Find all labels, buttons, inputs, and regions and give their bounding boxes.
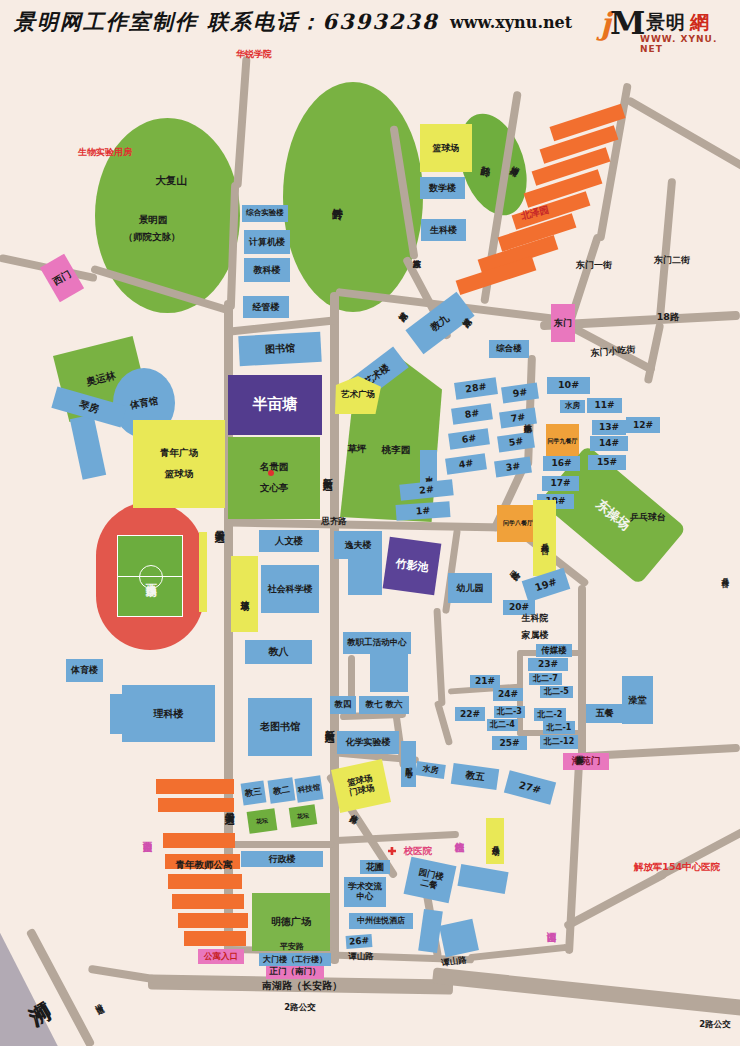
dorm-11-label: 11#: [594, 400, 614, 410]
label-shihe-label: 浉河: [16, 984, 38, 998]
canteen-wenxue-9: 问学九餐厅: [546, 424, 579, 459]
bldg-huaxue-label: 化学实验楼: [346, 737, 391, 747]
dorm-13-label: 13#: [599, 422, 619, 432]
bldg-jiaoke: 教科楼: [244, 258, 290, 282]
bldg-zonghelou-label: 综合楼: [496, 344, 522, 354]
gate-main-south-label: 正门（南门）: [270, 967, 321, 977]
dorm-17-label: 17#: [550, 478, 570, 488]
bldg-library: 图书馆: [238, 332, 321, 366]
bldg-xingzheng: 行政楼: [241, 851, 323, 867]
wenxinting-dot: [268, 470, 274, 476]
piano-bldg-stem: [70, 414, 106, 480]
dorm-24: 24#: [493, 688, 523, 701]
bldg-wucan: 五餐: [586, 704, 623, 723]
dorm-19: 19#: [522, 568, 571, 603]
dorm-1-label: 1#: [415, 505, 430, 517]
bldg-peidian: 配电中心: [401, 741, 416, 787]
stadium-west: 西操场: [96, 502, 204, 650]
court-basketball-mid: 篮球场: [231, 556, 258, 632]
bldg-xueshu: 学术交流 中心: [344, 877, 386, 907]
plaza-mingde-label: 明德广场: [271, 916, 311, 928]
apt-bar-8: [184, 931, 246, 946]
dorm-8-label: 8#: [464, 408, 480, 421]
piano-bldg-bar-label: 琴房: [78, 399, 100, 416]
gate-haiyuan: 海苑门: [563, 753, 609, 770]
label-jingming-upper-label: 景明大道: [214, 522, 226, 526]
bldg-tiyu-label: 体育楼: [71, 665, 98, 675]
label-taolilu-label: 桃李路: [523, 417, 532, 420]
apt-bar-5: [168, 874, 242, 889]
dorm-15-label: 15#: [597, 457, 617, 467]
dorm-13: 13#: [592, 420, 626, 435]
label-xinmin-upper-label: 新民大道: [322, 470, 334, 474]
bldg-jiaozhigong-b: [370, 654, 408, 692]
label-siqilu-h: 思齐路: [314, 516, 354, 527]
bldg-jiaoba-label: 教八: [269, 646, 289, 658]
dorm-bei2-4: 北二-4: [487, 719, 518, 731]
label-tanshanlu-1-label: 谭山路: [348, 952, 374, 962]
dorm-24-label: 24#: [498, 689, 518, 699]
label-18lu: 18路: [652, 311, 684, 323]
label-dongmen-yijie-label: 东门一街: [576, 260, 612, 270]
bldg-zaotang: 澡堂: [622, 676, 653, 724]
bldg-unlabeled-a: [457, 864, 508, 894]
label-jiashulou: 家属楼: [512, 629, 558, 641]
dorm-22-label: 22#: [460, 709, 480, 719]
dorm-6: 6#: [448, 428, 490, 449]
label-taolilu: 桃李路: [521, 396, 534, 440]
label-siqilu-diag-label: 思齐路: [502, 565, 510, 574]
campus-map: 奥运林西操场体育馆琴房青年广场 篮球场半亩塘名贵园 文心亭竹影池西门东门海苑门公…: [0, 0, 740, 1046]
road-youeryuan-2: [433, 608, 445, 706]
bldg-huaxue: 化学实验楼: [337, 731, 399, 754]
dorm-bei2-3: 北二-3: [494, 706, 525, 718]
dorm-1: 1#: [396, 501, 451, 521]
pond-banmutang: 半亩塘: [228, 375, 322, 435]
bldg-hotel-label: 中州佳悦酒店: [357, 916, 405, 925]
road-tanshanlu-4: [654, 827, 740, 882]
gate-west-label: 西门: [51, 269, 73, 288]
flowerbed-2-label: 花坛: [297, 812, 310, 820]
bldg-yifu-b: [348, 559, 382, 595]
road-xiaoyiyuan-h: [333, 831, 459, 845]
gym-ellipse-label: 体育馆: [129, 395, 159, 411]
road-dongmen-erjie-s: [644, 322, 665, 384]
dorm-27-label: 27#: [518, 779, 543, 796]
flowerbed-1: 花坛: [247, 808, 278, 834]
label-tanshanyuan-label: 谭山园: [546, 924, 557, 927]
dorm-bei2-2: 北二-2: [534, 708, 566, 721]
gate-west: 西门: [40, 254, 84, 303]
label-zhongxiuling-label: 钟秀岭: [332, 199, 344, 202]
flowerbed-2: 花坛: [289, 804, 318, 827]
dorm-16: 16#: [543, 456, 580, 471]
pingpong-strip-mid-label: 乒乓球台: [540, 536, 549, 540]
label-xiwangyuan-label: 西望园: [142, 834, 153, 837]
dorm-11: 11#: [587, 398, 622, 413]
label-2lu-1: 2路公交: [275, 1002, 325, 1013]
label-shengwu: 生物实验用房: [70, 146, 140, 158]
label-shengwu-label: 生物实验用房: [78, 147, 132, 157]
dorm-10-label: 10#: [558, 380, 579, 391]
dorm-19-label: 19#: [534, 576, 559, 594]
bldg-old-library-label: 老图书馆: [260, 721, 300, 733]
label-queling-label: 鹊岭: [481, 158, 492, 162]
bldg-youeryuan: 幼儿园: [448, 573, 492, 603]
dorm-23: 23#: [528, 658, 568, 671]
bldg-chuanmei-label: 传媒楼: [541, 646, 567, 656]
road-youeryuan-3: [434, 700, 453, 746]
bldg-shuifang-3-label: 水房: [422, 764, 439, 775]
bldg-jiaosi-label: 教四: [335, 700, 352, 710]
bldg-kejiguan-label: 科技馆: [297, 783, 320, 795]
bldg-tiyu: 体育楼: [66, 659, 103, 682]
label-shengkeyuan-label: 生科院: [522, 613, 549, 623]
dorm-28-label: 28#: [465, 382, 488, 396]
dorm-4: 4#: [445, 453, 487, 474]
bldg-shuifang-1-label: 水房: [424, 469, 433, 471]
label-pingpong-east-label: 乒乓球台: [630, 512, 666, 522]
bldg-jiaozhigong-a: 教职工活动中心: [343, 632, 411, 654]
label-siqilu-h-label: 思齐路: [321, 517, 347, 527]
bldg-huapu: 花圃: [360, 860, 390, 874]
label-shiyuanwenmai: （师院文脉）: [118, 231, 186, 243]
dorm-bei2-12-label: 北二-12: [544, 737, 574, 746]
label-dongmen-erjie-label: 东门二街: [654, 255, 690, 265]
pond-zhuyingchi-label: 竹影池: [395, 557, 429, 574]
bldg-youeryuan-label: 幼儿园: [457, 583, 484, 593]
label-jingmingyuan: 景明园: [130, 214, 176, 226]
dorm-14: 14#: [590, 436, 628, 451]
dorm-bei2-4-label: 北二-4: [490, 720, 515, 729]
bldg-jiaosan-label: 教三: [244, 787, 262, 799]
bldg-yifu-a: 逸夫楼: [334, 531, 382, 559]
label-jiefangjun-label: 解放军154中心医院: [634, 862, 720, 873]
dorm-bei2-1-label: 北二-1: [547, 723, 572, 732]
gate-apartment-entry: 公寓入口: [198, 949, 244, 964]
bldg-jiaoqi-jiaoliu-label: 教七 教六: [366, 700, 403, 710]
bldg-xingzheng-label: 行政楼: [269, 854, 296, 864]
plaza-yishu-label: 艺术广场: [341, 390, 375, 400]
bldg-jisuanji: 计算机楼: [244, 230, 290, 254]
bldg-zaotang-label: 澡堂: [629, 695, 647, 705]
label-jingmingyuan-label: 景明园: [139, 215, 168, 226]
road-east-branch: [625, 96, 740, 172]
gate-east-label: 东门: [554, 318, 572, 328]
dorm-25-label: 25#: [499, 738, 519, 748]
bldg-shuifang-2-label: 水房: [565, 402, 580, 411]
dorm-21-label: 21#: [475, 676, 495, 686]
campus-map-page: 景明网工作室制作 联系电话：6393238 www.xynu.net j M 景…: [0, 0, 740, 1046]
gate-apartment-entry-label: 公寓入口: [204, 952, 238, 962]
dorm-27: 27#: [504, 770, 556, 805]
label-dafushan-label: 大复山: [155, 174, 187, 186]
dorm-28: 28#: [454, 377, 498, 400]
dorm-12-label: 12#: [633, 420, 653, 430]
gate-main-south: 正门（南门）: [266, 965, 324, 979]
label-nanhulu: 南湖路（长安路）: [252, 979, 352, 992]
garden-minggui-label: 名贵园 文心亭: [260, 462, 289, 495]
label-huarui-label: 华锐学院: [236, 49, 272, 59]
label-xinmin-upper: 新民大道: [320, 432, 335, 512]
dorm-16-label: 16#: [551, 458, 571, 468]
label-2lu-2-label: 2路公交: [699, 1020, 730, 1030]
dorm-6-label: 6#: [461, 433, 477, 446]
gatehouse-bank: 大门楼（工行楼）: [259, 953, 331, 966]
label-yanhe-dadao-label: 沿河大道: [90, 997, 99, 1005]
dorm-10: 10#: [547, 377, 590, 394]
label-caoping: 草坪: [344, 442, 370, 456]
canteen-wenxue-9-label: 问学九餐厅: [548, 438, 578, 445]
bldg-shuxue: 数学楼: [420, 177, 465, 199]
dorm-14-label: 14#: [599, 438, 619, 448]
stadium-stand: [199, 532, 207, 612]
bldg-hotel: 中州佳悦酒店: [349, 913, 413, 929]
bldg-yuanmenlou-label: 园门楼 二餐: [415, 868, 444, 892]
pingpong-strip-mid: 乒乓球台: [533, 500, 556, 576]
bldg-shehuikexue-label: 社会科学楼: [268, 584, 313, 594]
bldg-zonghelou: 综合楼: [489, 340, 529, 358]
court-basketball-mid-label: 篮球场: [240, 593, 250, 596]
bldg-jisuanji-label: 计算机楼: [249, 237, 285, 247]
dorm-22: 22#: [455, 707, 485, 721]
garden-minggui: 名贵园 文心亭: [228, 437, 320, 519]
road-yanhe-branch: [88, 965, 156, 984]
bldg-jiaoer-label: 教二: [272, 784, 290, 796]
dorm-bei2-5-label: 北二-5: [544, 687, 569, 696]
dorm-26: 26#: [346, 934, 373, 949]
road-xingzheng-h: [228, 841, 334, 848]
grove-aoyunlin-label: 奥运林: [85, 370, 117, 388]
bldg-unlabeled-c: [439, 919, 479, 957]
dorm-17: 17#: [542, 476, 579, 491]
bldg-jiaoer: 教二: [268, 777, 296, 803]
label-dongmen-erjie: 东门二街: [646, 254, 698, 266]
label-qingjiao-gongyu-label: 青年教师公寓: [176, 860, 233, 871]
apt-bar-7: [178, 913, 248, 928]
dorm-25: 25#: [492, 736, 527, 750]
court-basketball-top-label: 篮球场: [433, 143, 460, 153]
pond-zhuyingchi: 竹影池: [383, 537, 442, 596]
bldg-like-a-label: 理科楼: [154, 708, 184, 720]
flowerbed-1-label: 花坛: [256, 817, 269, 825]
dorm-8: 8#: [451, 403, 493, 424]
hospital-cross-icon: [388, 847, 396, 855]
label-siqilu-v-label: 思齐路: [575, 749, 584, 752]
road-tanshanlu-3: [563, 869, 668, 930]
bldg-kejiguan: 科技馆: [294, 775, 323, 802]
bldg-jiaosan: 教三: [241, 781, 267, 806]
stadium-west-label: 西操场: [144, 575, 157, 578]
label-jingming-upper: 景明大道: [212, 484, 227, 564]
road-nanhulu-2: [432, 967, 740, 1016]
label-jingming-lower: 景明大道: [222, 766, 237, 846]
label-xinmin-lower: 新民大道: [322, 682, 337, 766]
bldg-jiaowu-label: 教五: [465, 770, 485, 783]
canteen-wenxue-8-label: 问学八餐厅: [503, 520, 533, 527]
dorm-2-label: 2#: [419, 484, 435, 496]
label-tanshanlu-2-label: 谭山路: [441, 955, 468, 968]
bldg-chuanmei: 传媒楼: [536, 644, 572, 657]
dorm-bei2-3-label: 北二-3: [497, 707, 522, 716]
label-jiefangjun: 解放军154中心医院: [614, 861, 740, 873]
label-xiaoyiyuan: 校医院: [397, 845, 439, 857]
label-dongmen-yijie: 东门一街: [568, 259, 620, 271]
bldg-jiaoke-label: 教科楼: [254, 265, 281, 275]
bldg-yifu-a-label: 逸夫楼: [345, 540, 372, 550]
label-tanshanyuan: 谭山园: [544, 902, 558, 948]
label-jiashulou-label: 家属楼: [522, 630, 549, 640]
label-dafushan: 大复山: [148, 174, 194, 187]
dorm-bei2-7: 北二-7: [529, 673, 562, 685]
label-shidilu-label: 浉堤路: [514, 159, 524, 166]
label-caoping-label: 草坪: [348, 444, 367, 455]
dorm-bei2-7-label: 北二-7: [533, 674, 558, 683]
bldg-like-a: 理科楼: [122, 685, 215, 742]
bldg-shuifang-2: 水房: [560, 400, 585, 413]
road-dongmen-erjie: [656, 178, 676, 320]
dorm-23-label: 23#: [538, 659, 558, 669]
label-2lu-2: 2路公交: [690, 1019, 740, 1030]
bldg-huapu-label: 花圃: [366, 862, 384, 872]
dorm-4-label: 4#: [458, 458, 474, 471]
label-yiguilu-label: 依桂路: [354, 807, 363, 814]
label-pingpong-right-label: 乒乓球台: [720, 571, 729, 575]
road-jingming-top-1: [233, 56, 250, 188]
dorm-3: 3#: [494, 457, 532, 478]
bldg-shengke: 生科楼: [421, 219, 466, 241]
label-shengkeyuan: 生科院: [512, 612, 558, 624]
label-pingpong-right: 乒乓球台: [718, 548, 731, 598]
bldg-jingguan-label: 经管楼: [253, 302, 280, 312]
dorm-15: 15#: [588, 455, 626, 470]
bldg-renwen: 人文楼: [259, 530, 319, 552]
bldg-jiaowu: 教五: [451, 763, 499, 790]
label-zhongxiuling: 钟秀岭: [330, 168, 346, 232]
label-dongchenglu-2-label: 东城路: [454, 312, 462, 321]
label-jingming-lower-label: 景明大道: [224, 804, 236, 808]
court-basketball-top: 篮球场: [420, 124, 472, 172]
dorm-21: 21#: [470, 675, 500, 688]
bldg-jiaoqi-jiaoliu: 教七 教六: [359, 696, 409, 714]
label-18lu-label: 18路: [657, 312, 680, 323]
label-dongpolu: 东坡路: [410, 232, 423, 274]
bldg-library-label: 图书馆: [265, 342, 296, 355]
dorm-bei2-5: 北二-5: [540, 686, 573, 698]
label-nanhulu-label: 南湖路（长安路）: [262, 980, 342, 992]
label-pinganlu: 平安路: [274, 942, 310, 952]
label-yiguiyuan: 依桂园: [452, 812, 466, 858]
bldg-jiaoba: 教八: [245, 640, 312, 664]
label-qingjiao-gongyu: 青年教师公寓: [164, 859, 244, 871]
bldg-renwen-label: 人文楼: [275, 536, 304, 547]
bldg-yuanmenlou: 园门楼 二餐: [404, 857, 457, 904]
bldg-shengke-label: 生科楼: [430, 225, 457, 235]
label-yiguiyuan-label: 依桂园: [454, 834, 465, 837]
bldg-shuifang-3: 水房: [415, 761, 446, 779]
bldg-zonghe-shiyan-label: 综合实验楼: [246, 209, 284, 218]
label-xinmin-lower-label: 新民大道: [324, 722, 336, 726]
bldg-shehuikexue: 社会科学楼: [261, 565, 319, 613]
bldg-shuxue-label: 数学楼: [429, 183, 456, 193]
dorm-bei2-2-label: 北二-2: [538, 710, 563, 719]
label-dongpolu-label: 东坡路: [412, 252, 421, 255]
label-xiaoyiyuan-label: 校医院: [404, 846, 433, 857]
label-taoliyuan: 桃李园: [376, 443, 416, 457]
label-tanshanlu-1: 谭山路: [341, 951, 381, 962]
bldg-xueshu-label: 学术交流 中心: [348, 882, 382, 902]
label-taoliyuan-label: 桃李园: [382, 445, 411, 456]
label-pingpong-east: 乒乓球台: [622, 511, 674, 523]
bldg-wucan-label: 五餐: [596, 708, 614, 718]
apt-bar-6: [172, 894, 244, 909]
bldg-jingguan: 经管楼: [243, 296, 289, 318]
bldg-jiaozhigong-a-label: 教职工活动中心: [347, 638, 407, 648]
court-pingpong-yigui-label: 乒乓球场: [491, 839, 500, 843]
label-huarui: 华锐学院: [228, 48, 280, 60]
label-siqilu-diag: 思齐路: [486, 551, 527, 588]
road-tanshan-v: [565, 762, 583, 954]
label-siqilu-v: 思齐路: [573, 730, 585, 770]
label-2lu-1-label: 2路公交: [284, 1003, 315, 1013]
dorm-12: 12#: [626, 417, 660, 433]
bldg-peidian-label: 配电中心: [404, 762, 412, 766]
bldg-zonghe-shiyan: 综合实验楼: [242, 205, 288, 222]
label-dongchenglu-1-label: 东城路: [390, 306, 398, 315]
label-pinganlu-label: 平安路: [280, 942, 304, 951]
dorm-3-label: 3#: [505, 461, 521, 474]
youth-square-label: 青年广场 篮球场: [160, 448, 198, 481]
dorm-bei2-1: 北二-1: [543, 721, 575, 734]
dorm-26-label: 26#: [349, 936, 370, 948]
pond-banmutang-label: 半亩塘: [253, 396, 298, 413]
bldg-old-library: 老图书馆: [248, 698, 312, 756]
gate-east: 东门: [551, 304, 575, 342]
label-xiwangyuan: 西望园: [140, 812, 154, 858]
label-shiyuanwenmai-label: （师院文脉）: [124, 232, 181, 243]
court-pingpong-yigui: 乒乓球场: [486, 818, 504, 864]
gatehouse-bank-label: 大门楼（工行楼）: [263, 955, 327, 964]
